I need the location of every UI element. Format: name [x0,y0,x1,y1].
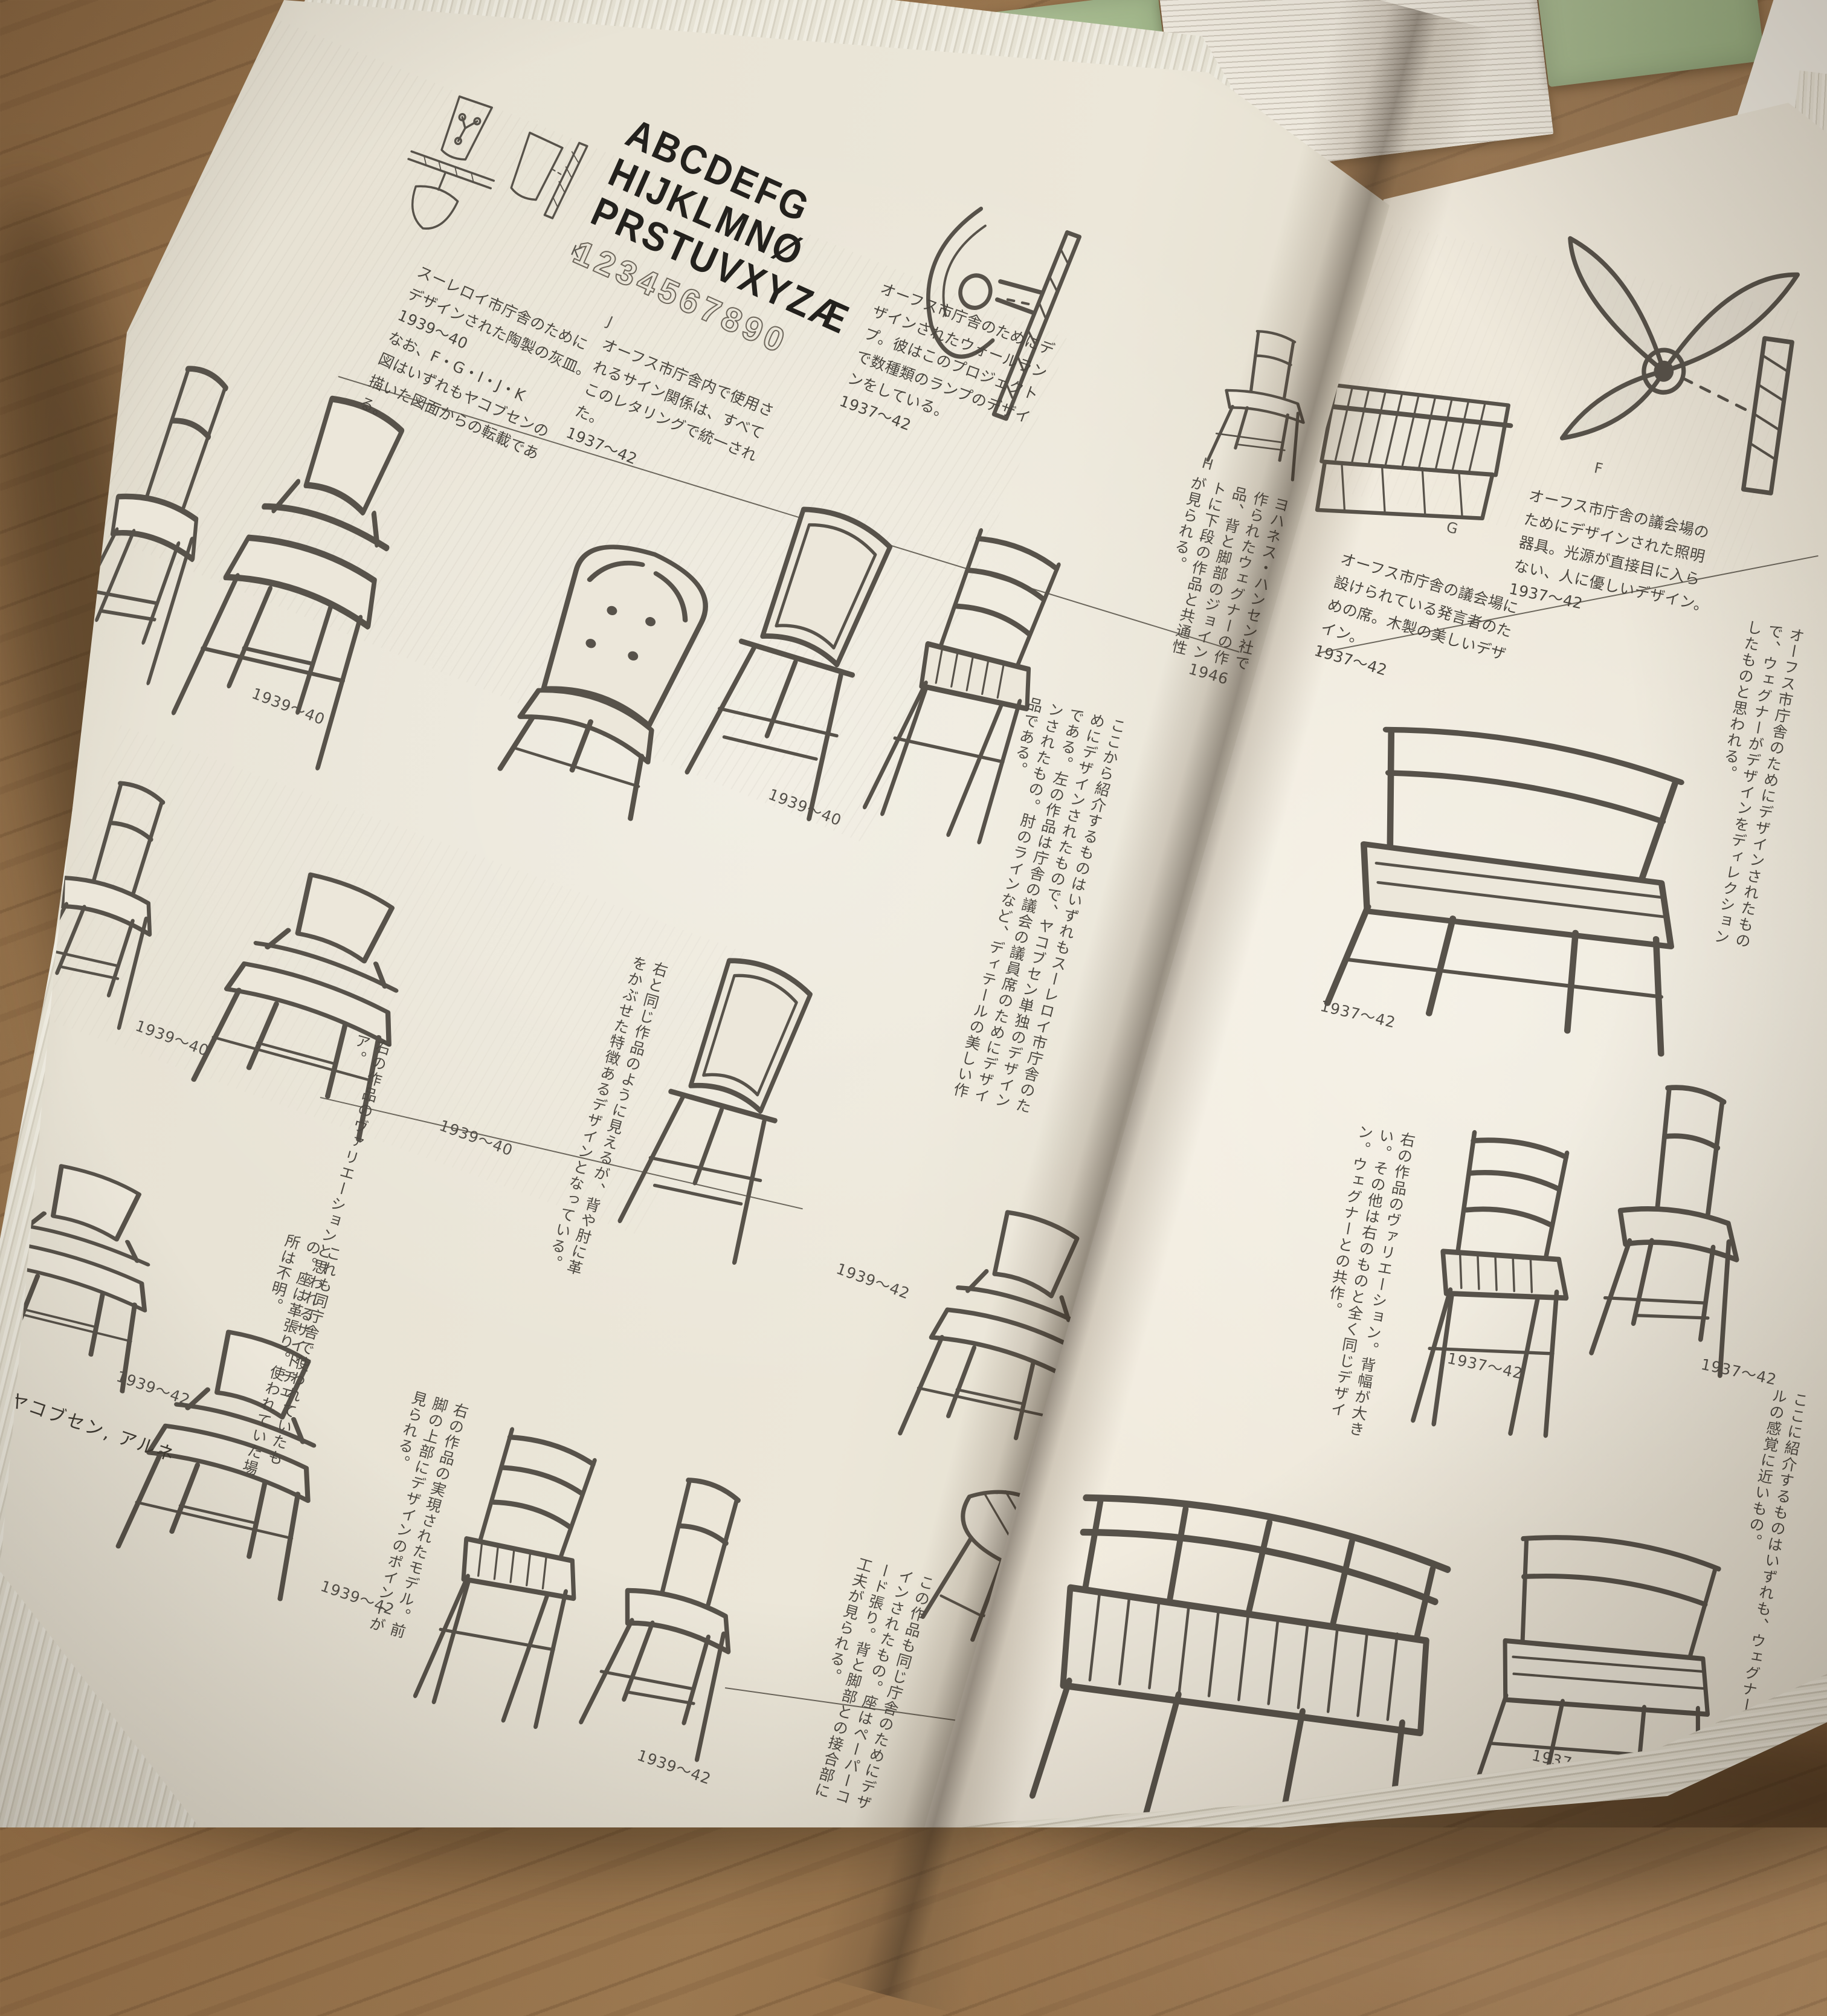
ashtray-figure-icon [349,69,608,315]
caption-lettering: オーフス市庁舎内で使用さ れるサイン関係は、すべて このレタリングで統一され た… [562,332,797,520]
ceiling-light-drawing [1508,184,1825,519]
chair-icon [172,843,451,1161]
date-row2c: 1939〜42 [834,1257,913,1304]
ashtray-drawing [348,69,607,317]
chair-right-side [1563,1067,1794,1398]
note-papercord: この作品も同じ庁舎のためにデザインされたもの。座はペーパーコード張り。背と脚部と… [759,1547,938,1827]
ceiling-light-icon [1509,184,1825,516]
chair-icon [1564,1067,1794,1395]
chair-row2-armchair [171,843,450,1163]
date-row2b: 1939〜40 [437,1114,517,1160]
green-book-cover-back [1532,0,1765,87]
figure-label-j: J [605,313,616,330]
